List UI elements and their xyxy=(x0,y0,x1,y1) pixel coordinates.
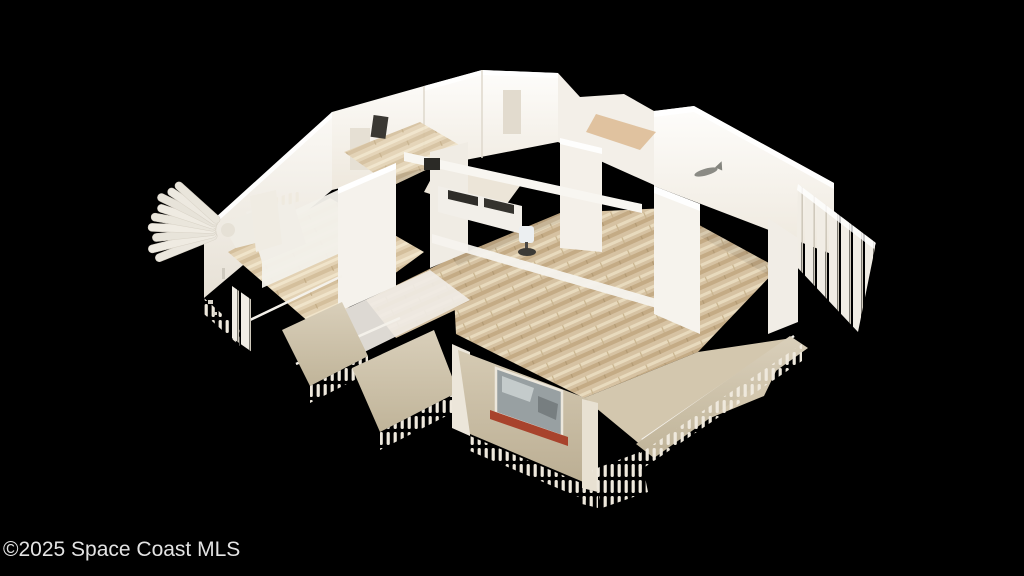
fan-hub xyxy=(221,223,235,237)
doorway-shadow xyxy=(503,90,521,134)
kitchen-appliance xyxy=(371,115,389,139)
watermark: ©2025 Space Coast MLS xyxy=(3,538,240,561)
speck xyxy=(222,268,225,279)
partition-wall xyxy=(768,218,798,334)
office-chair xyxy=(518,226,536,256)
screenshot-root: ©2025 Space Coast MLS xyxy=(0,0,1024,576)
kitchen-appliance xyxy=(424,158,440,170)
scene-canvas: ©2025 Space Coast MLS xyxy=(0,0,1024,576)
speck xyxy=(208,300,213,304)
speck xyxy=(213,312,217,315)
